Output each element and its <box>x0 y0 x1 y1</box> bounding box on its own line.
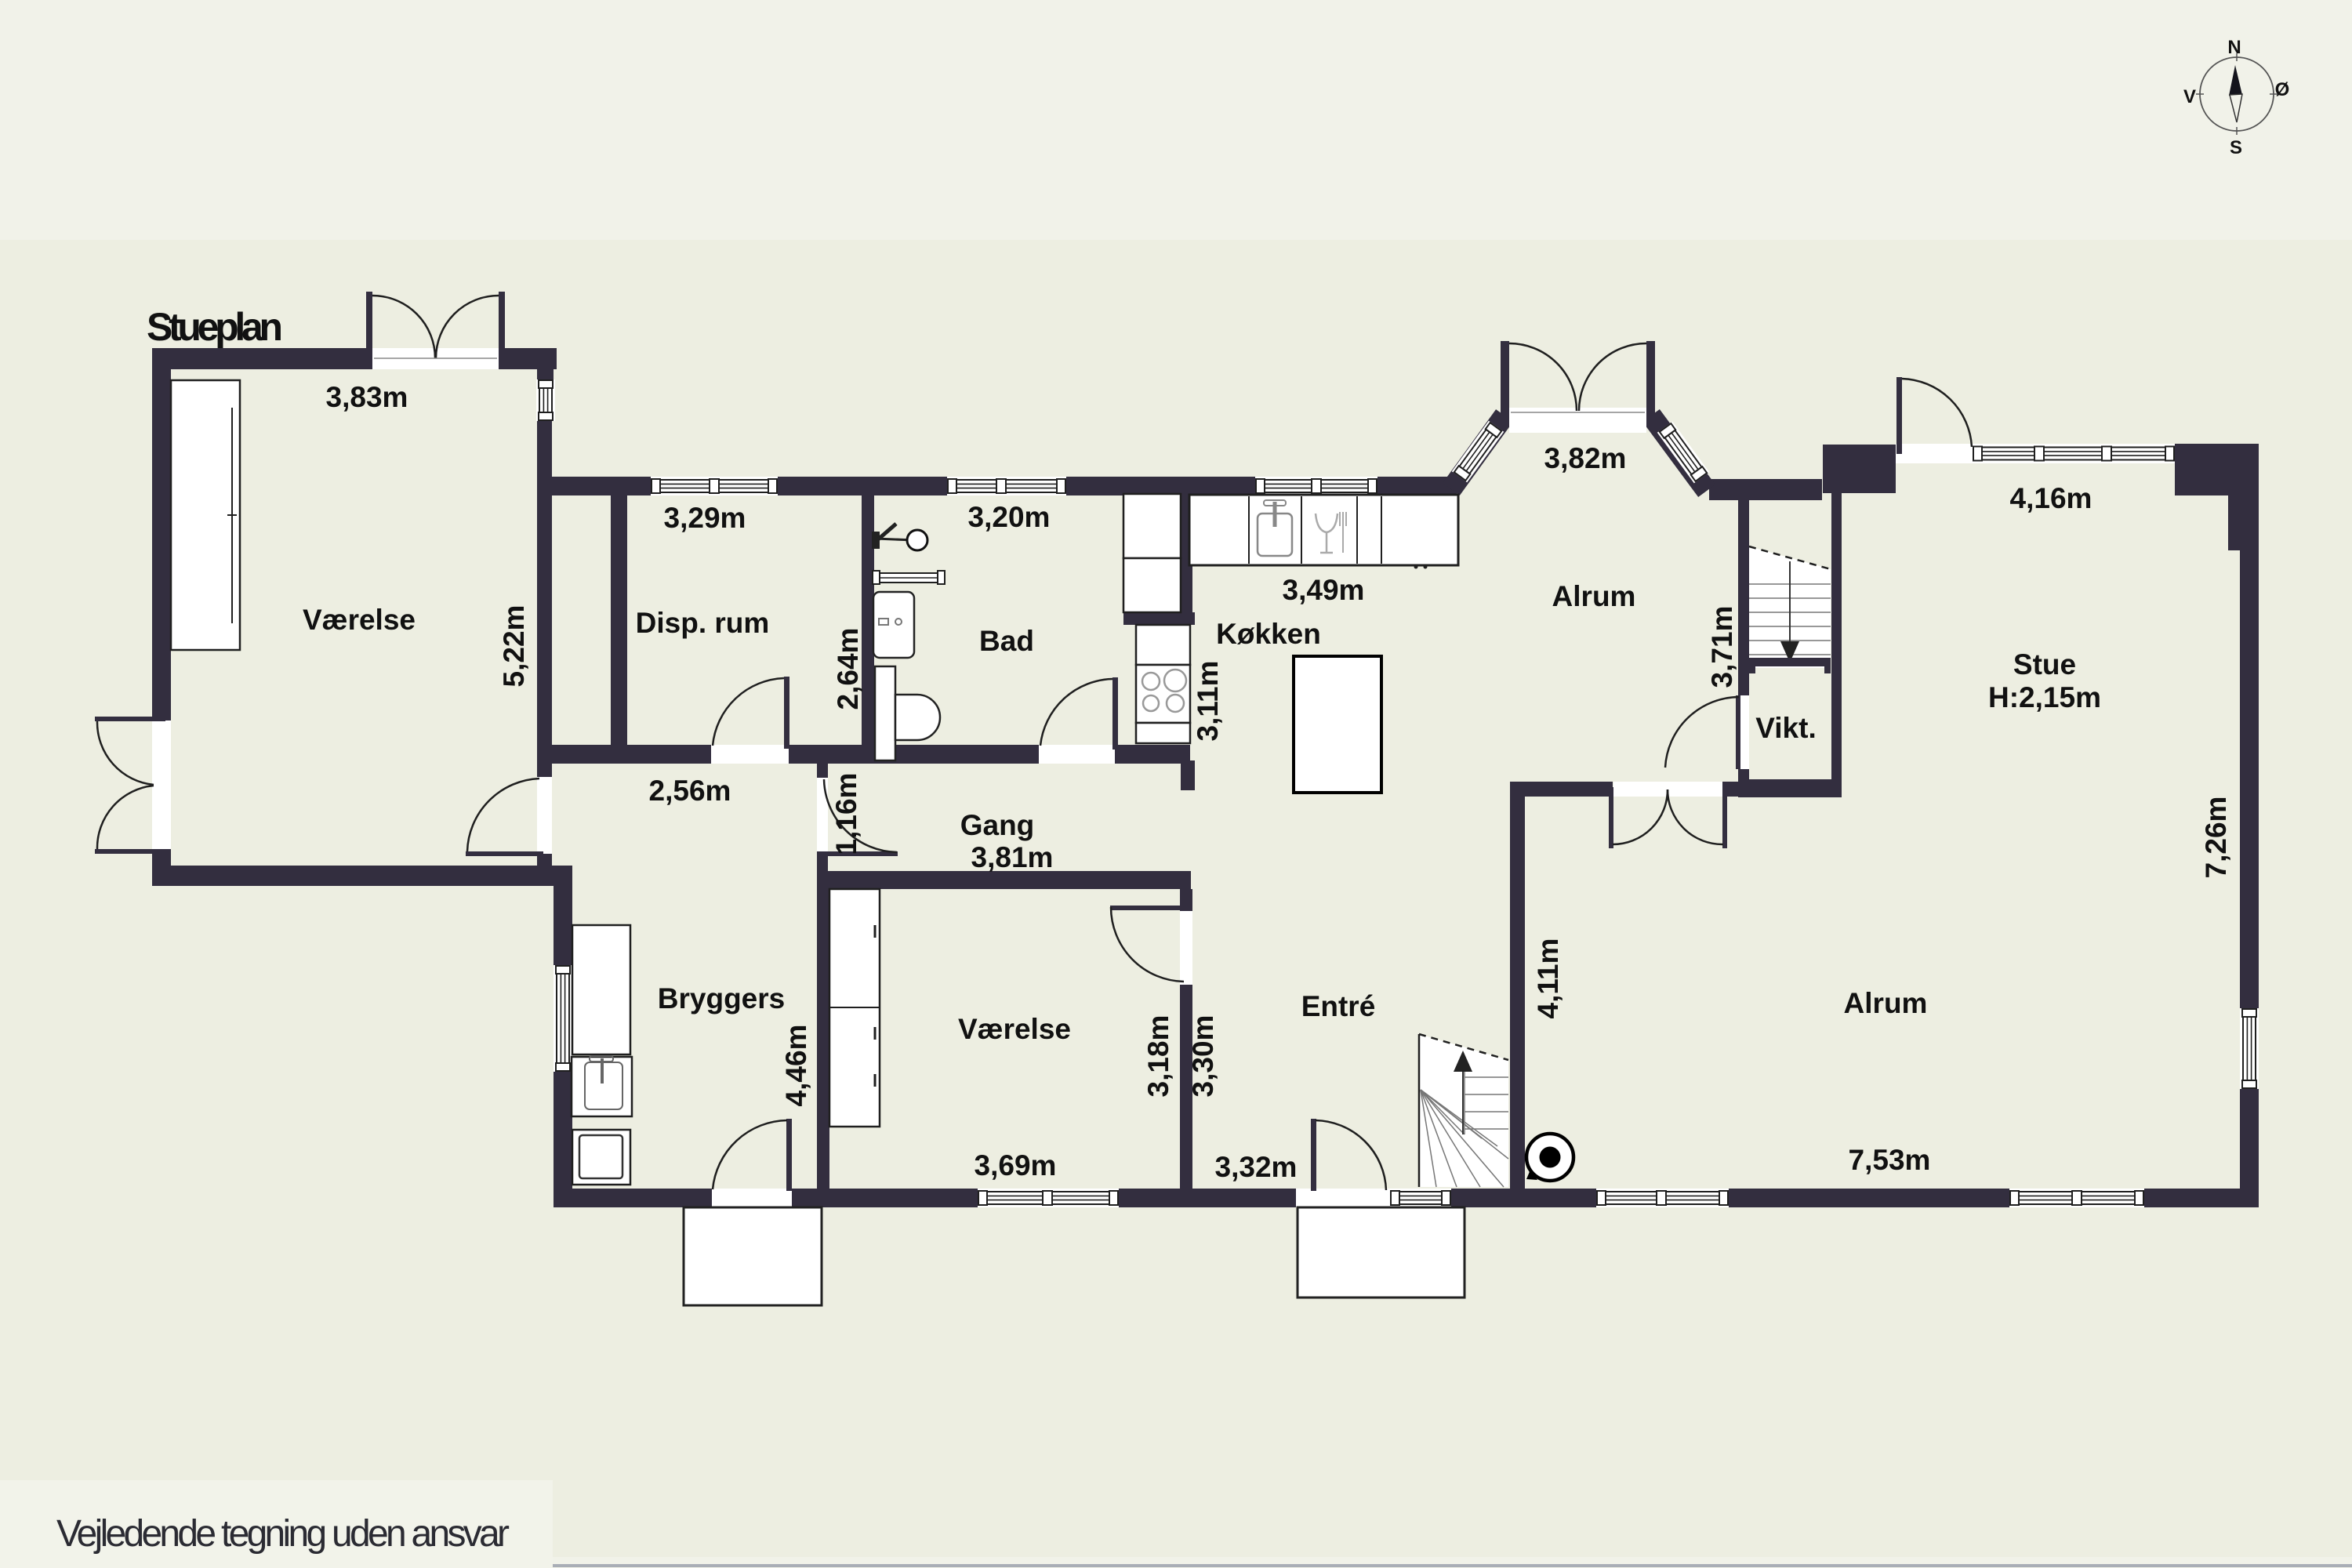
svg-text:3,32m: 3,32m <box>1215 1151 1298 1183</box>
svg-text:H:2,15m: H:2,15m <box>1988 681 2101 713</box>
svg-text:3,82m: 3,82m <box>1544 442 1627 474</box>
svg-text:1,16m: 1,16m <box>830 773 862 855</box>
svg-text:3,30m: 3,30m <box>1187 1015 1219 1098</box>
svg-text:4,46m: 4,46m <box>780 1025 812 1107</box>
svg-text:S: S <box>2230 137 2242 158</box>
svg-text:Køkken: Køkken <box>1216 618 1321 650</box>
svg-text:Bad: Bad <box>979 625 1034 657</box>
svg-text:4,11m: 4,11m <box>1532 938 1564 1019</box>
svg-text:Disp. rum: Disp. rum <box>636 607 770 639</box>
svg-text:2,56m: 2,56m <box>649 775 731 807</box>
svg-text:3,71m: 3,71m <box>1706 606 1738 688</box>
svg-text:3,18m: 3,18m <box>1142 1015 1174 1098</box>
svg-text:Gang: Gang <box>960 809 1035 841</box>
svg-text:3,83m: 3,83m <box>326 381 408 413</box>
svg-text:5,22m: 5,22m <box>498 605 530 688</box>
svg-text:4,16m: 4,16m <box>2010 482 2092 514</box>
svg-text:3,20m: 3,20m <box>968 501 1051 533</box>
svg-text:2,64m: 2,64m <box>832 628 864 710</box>
svg-text:3,49m: 3,49m <box>1283 574 1365 606</box>
svg-text:Vejledende tegning uden ansvar: Vejledende tegning uden ansvar <box>56 1513 510 1555</box>
svg-text:3,29m: 3,29m <box>664 502 746 534</box>
svg-text:3,11m: 3,11m <box>1192 661 1224 742</box>
svg-text:3,69m: 3,69m <box>975 1149 1057 1181</box>
svg-text:Vikt.: Vikt. <box>1755 712 1816 744</box>
svg-text:Alrum: Alrum <box>1844 987 1928 1019</box>
svg-text:Stue: Stue <box>2013 648 2076 681</box>
svg-text:7,53m: 7,53m <box>1849 1144 1931 1176</box>
svg-text:7,26m: 7,26m <box>2200 797 2232 879</box>
svg-text:3,81m: 3,81m <box>971 841 1054 873</box>
svg-text:Ø: Ø <box>2275 79 2290 100</box>
svg-text:V: V <box>2183 86 2196 107</box>
svg-text:Værelse: Værelse <box>303 604 416 636</box>
svg-text:Alrum: Alrum <box>1552 580 1636 612</box>
svg-text:Entré: Entré <box>1301 990 1376 1022</box>
svg-text:Værelse: Værelse <box>958 1013 1071 1045</box>
svg-text:Stueplan: Stueplan <box>147 305 283 349</box>
svg-text:Bryggers: Bryggers <box>658 982 785 1014</box>
svg-text:N: N <box>2227 37 2241 58</box>
